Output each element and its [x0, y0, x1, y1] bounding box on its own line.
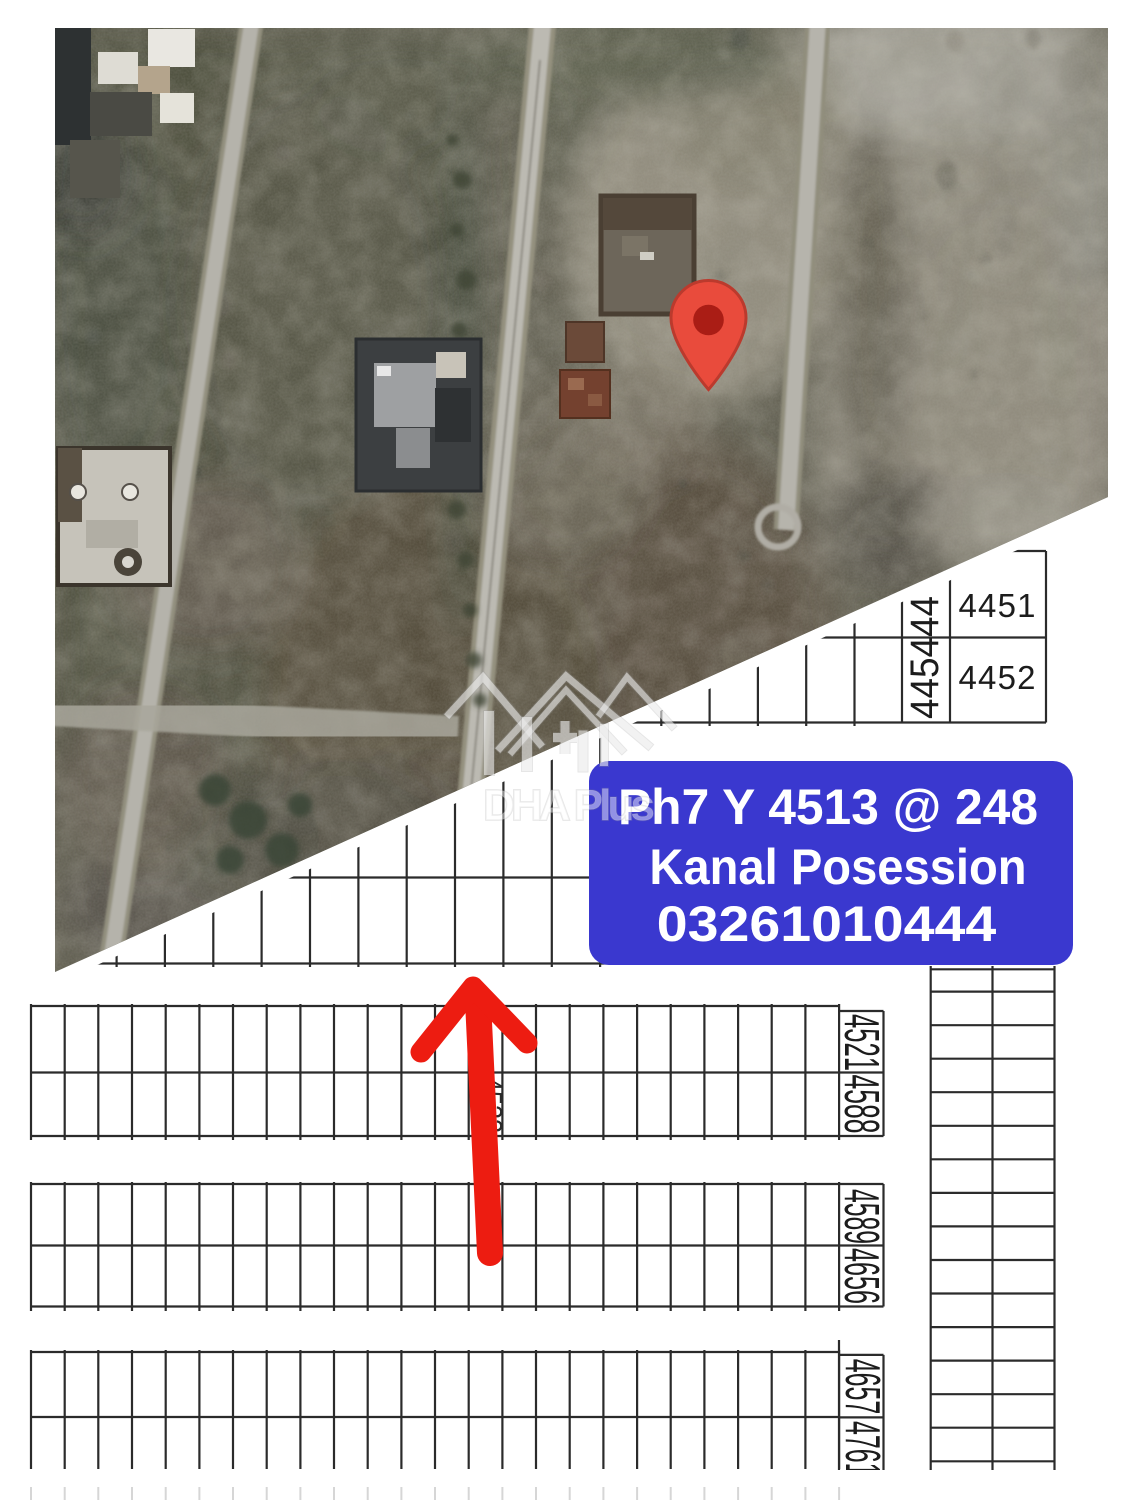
svg-text:4761: 4761: [835, 1421, 889, 1477]
svg-text:4452: 4452: [959, 659, 1036, 696]
svg-text:4521: 4521: [834, 1014, 888, 1071]
svg-text:4589: 4589: [834, 1189, 888, 1244]
svg-text:4588: 4588: [834, 1075, 889, 1134]
svg-text:4451: 4451: [959, 587, 1036, 624]
svg-text:4657: 4657: [835, 1359, 889, 1415]
svg-text:4656: 4656: [834, 1248, 888, 1304]
svg-text:DHA Plus: DHA Plus: [483, 781, 655, 830]
svg-text:03261010444: 03261010444: [657, 897, 997, 953]
svg-text:Ph7 Y 4513 @ 248: Ph7 Y 4513 @ 248: [618, 779, 1038, 835]
svg-text:Kanal Posession: Kanal Posession: [649, 840, 1026, 896]
svg-text:445444: 445444: [903, 596, 948, 719]
